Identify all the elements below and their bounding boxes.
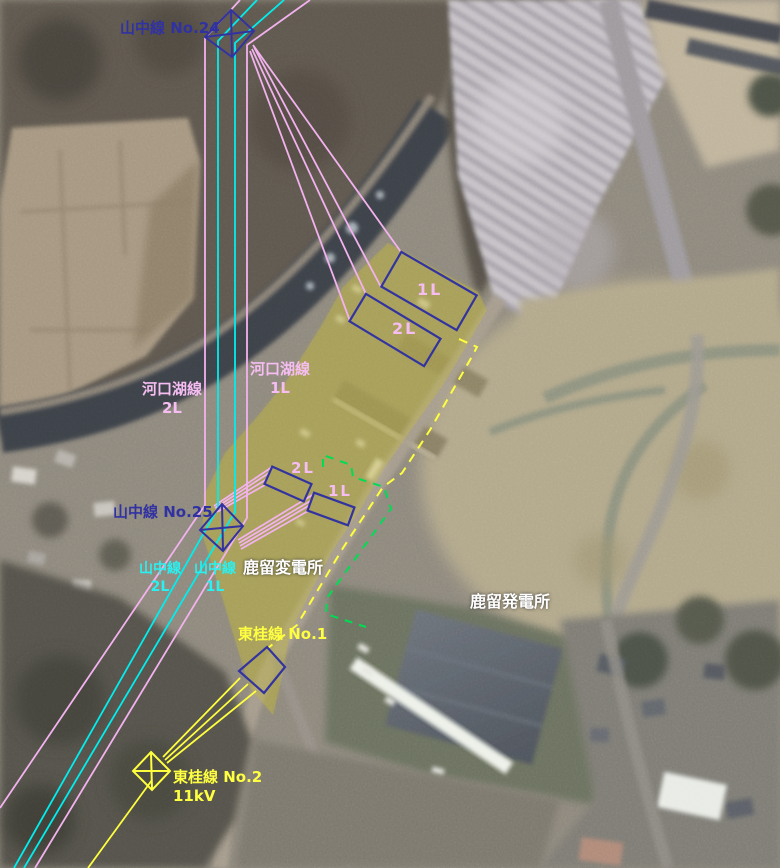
label-power-plant: 鹿留発電所 xyxy=(470,592,550,612)
label-kawaguchiko-line-2l: 河口湖線 2L xyxy=(141,380,203,418)
label-kawaguchiko-1l-circuit: 1L xyxy=(270,379,290,397)
label-tokatsu-no2-name: 東桂線 No.2 xyxy=(173,768,262,786)
substation-area-highlight xyxy=(202,243,487,715)
annotation-overlay xyxy=(0,0,780,868)
label-yamanaka-2l-circuit: 2L xyxy=(151,579,170,595)
label-kawaguchiko-2l-name: 河口湖線 xyxy=(142,380,202,398)
label-kawaguchiko-1l-name: 河口湖線 xyxy=(250,360,310,378)
tower-icon-tokatsu-no2 xyxy=(133,752,170,790)
label-yamanaka-2l-name: 山中線 xyxy=(139,561,181,577)
label-substation: 鹿留変電所 xyxy=(243,558,323,578)
label-tower-yamanaka-no25: 山中線 No.25 xyxy=(113,503,213,522)
label-kawaguchiko-line-1l: 河口湖線 1L xyxy=(249,360,311,398)
label-tokatsu-no2: 東桂線 No.2 11kV xyxy=(173,768,262,806)
label-tower-yamanaka-no24: 山中線 No.24 xyxy=(120,19,220,38)
label-yamanaka-line-2l: 山中線 2L xyxy=(134,561,186,596)
label-tokatsu-no2-voltage: 11kV xyxy=(173,787,215,805)
label-tokatsu-no1: 東桂線 No.1 xyxy=(238,625,327,644)
label-bay-large-2l: 2L xyxy=(392,319,417,339)
aerial-map: 山中線 No.24 河口湖線 2L 河口湖線 1L 山中線 No.25 山中線 … xyxy=(0,0,780,868)
label-bay-small-1l: 1L xyxy=(328,482,352,501)
label-yamanaka-1l-name: 山中線 xyxy=(194,561,236,577)
label-yamanaka-1l-circuit: 1L xyxy=(206,579,225,595)
label-yamanaka-line-1l: 山中線 1L xyxy=(189,561,241,596)
label-bay-large-1l: 1L xyxy=(417,280,442,300)
label-kawaguchiko-2l-circuit: 2L xyxy=(162,399,182,417)
label-bay-small-2l: 2L xyxy=(291,459,315,478)
